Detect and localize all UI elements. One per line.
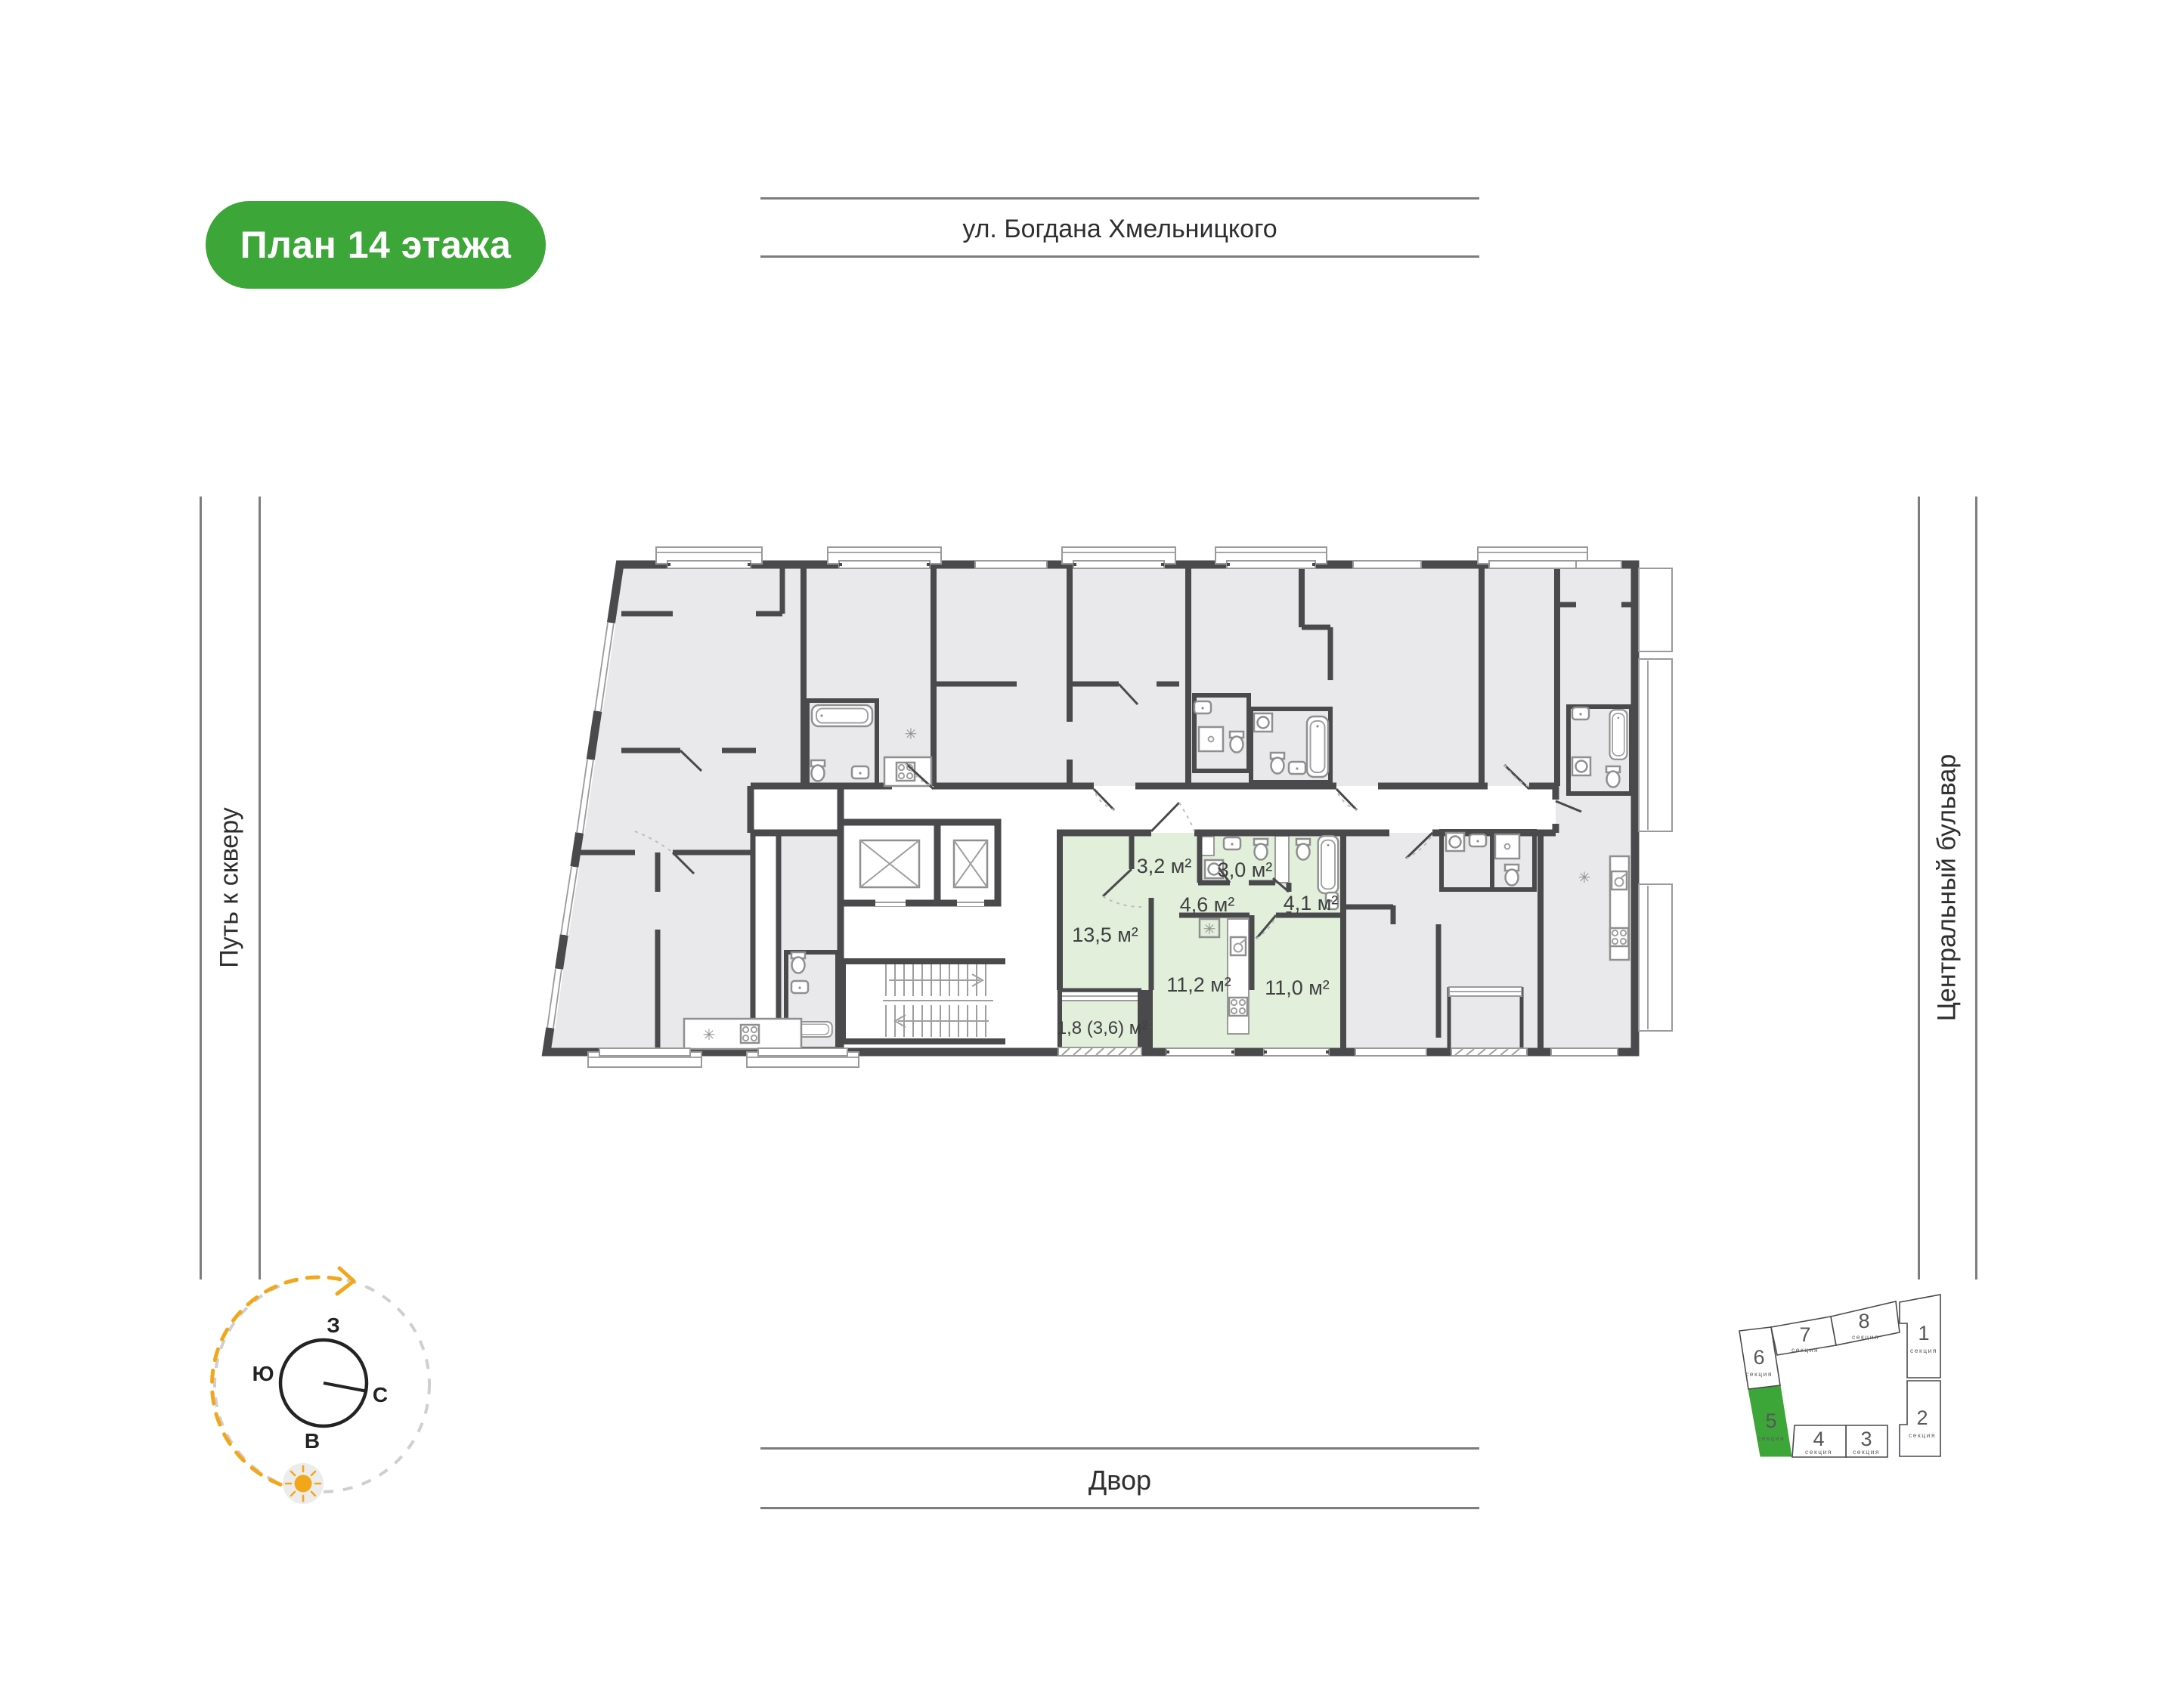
left-path-line-inner xyxy=(259,497,261,1279)
svg-text:3: 3 xyxy=(1860,1428,1872,1450)
room-area-hallway: 3,2 м² xyxy=(1137,855,1192,877)
svg-text:1: 1 xyxy=(1918,1322,1929,1344)
left-path-label: Путь к скверу xyxy=(215,699,245,1077)
compass-west: З xyxy=(327,1313,340,1337)
compass-rose: З Ю С В xyxy=(252,1313,389,1453)
bottom-yard-label: Двор xyxy=(760,1465,1479,1496)
svg-text:секция: секция xyxy=(1853,1448,1880,1456)
section-1[interactable]: 1 секция xyxy=(1900,1295,1940,1378)
section-key-plan: 1 секция 2 секция 3 секция 4 секция 5 се… xyxy=(1723,1285,1958,1474)
floor-plan-badge: План 14 этажа xyxy=(206,201,546,289)
room-area-bathroom: 3,0 м² xyxy=(1218,859,1273,881)
bottom-yard-line-upper xyxy=(760,1447,1479,1450)
room-area-living: 13,5 м² xyxy=(1072,924,1138,946)
svg-text:секция: секция xyxy=(1909,1431,1936,1439)
svg-text:✳: ✳ xyxy=(1203,920,1216,938)
sun-icon xyxy=(283,1463,324,1504)
right-boulevard-line-inner xyxy=(1918,497,1920,1279)
svg-text:секция: секция xyxy=(1852,1333,1879,1341)
section-3[interactable]: 3 секция xyxy=(1846,1425,1887,1457)
svg-text:секция: секция xyxy=(1791,1346,1819,1354)
svg-text:✳: ✳ xyxy=(905,725,918,743)
section-8[interactable]: 8 секция xyxy=(1831,1301,1900,1345)
svg-text:7: 7 xyxy=(1799,1323,1810,1346)
section-2[interactable]: 2 секция xyxy=(1900,1381,1940,1456)
room-area-hall: 4,6 м² xyxy=(1180,893,1235,916)
svg-text:✳: ✳ xyxy=(703,1026,716,1044)
top-street-label: ул. Богдана Хмельницкого xyxy=(760,215,1479,244)
compass-south: Ю xyxy=(252,1362,274,1385)
floor-plan-badge-label: План 14 этажа xyxy=(240,223,512,267)
room-area-bedroom: 11,0 м² xyxy=(1265,976,1330,999)
section-5[interactable]: 5 секция xyxy=(1748,1385,1791,1456)
section-7[interactable]: 7 секция xyxy=(1771,1317,1836,1355)
floor-plan: ✳ ✳ ✳ xyxy=(522,537,1686,1081)
svg-text:8: 8 xyxy=(1858,1310,1869,1332)
room-area-bathroom2: 4,1 м² xyxy=(1284,892,1339,914)
svg-text:секция: секция xyxy=(1757,1434,1785,1442)
compass-north: С xyxy=(373,1383,388,1406)
section-4[interactable]: 4 секция xyxy=(1792,1425,1846,1457)
svg-text:секция: секция xyxy=(1910,1347,1937,1354)
svg-text:секция: секция xyxy=(1745,1370,1773,1378)
right-boulevard-line-outer xyxy=(1975,497,1977,1279)
svg-text:4: 4 xyxy=(1813,1428,1824,1450)
left-path-line-outer xyxy=(200,497,202,1279)
svg-text:2: 2 xyxy=(1916,1406,1928,1429)
svg-text:✳: ✳ xyxy=(1578,868,1591,886)
right-boulevard-label: Центральный бульвар xyxy=(1933,699,1962,1077)
compass: З Ю С В xyxy=(189,1247,476,1549)
top-street-line-lower xyxy=(760,255,1479,258)
compass-east: В xyxy=(305,1429,320,1453)
svg-text:секция: секция xyxy=(1805,1448,1832,1456)
room-area-balcony: 1,8 (3,6) м² xyxy=(1057,1018,1148,1038)
bottom-yard-line-lower xyxy=(760,1507,1479,1509)
page: План 14 этажа ул. Богдана Хмельницкого Д… xyxy=(0,0,2177,1708)
svg-text:6: 6 xyxy=(1753,1346,1764,1369)
top-street-line-upper xyxy=(760,197,1479,200)
room-area-kitchen: 11,2 м² xyxy=(1166,973,1231,996)
svg-text:5: 5 xyxy=(1765,1409,1776,1432)
